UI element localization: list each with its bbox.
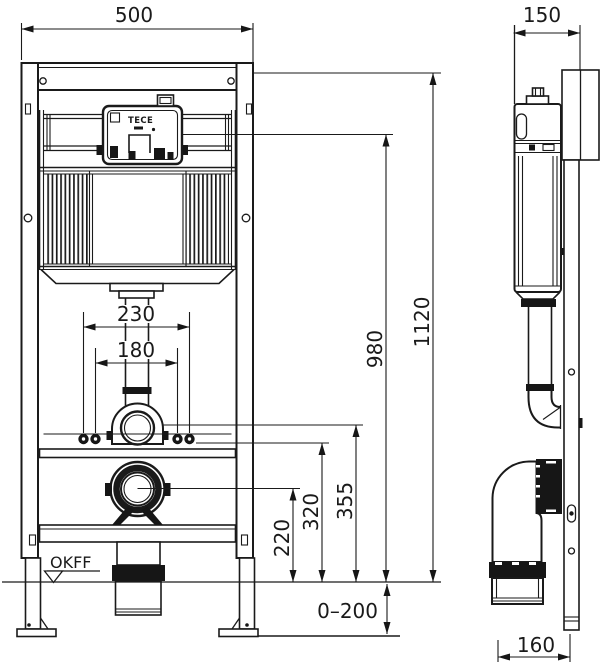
cover-clip-left xyxy=(97,145,103,155)
crossbar-screw-hole-left xyxy=(40,78,46,84)
side-rail xyxy=(564,160,579,630)
flush-pipe-coupling xyxy=(123,387,152,394)
level-triangle-icon xyxy=(45,571,63,583)
wc-outlet-ring xyxy=(105,462,171,525)
dim-total-height-label: 1120 xyxy=(410,297,434,348)
dim-frame-depth-label: 150 xyxy=(523,3,561,27)
rail-hole xyxy=(569,548,575,554)
cover-detail-square xyxy=(111,113,120,122)
dim-frame-depth: 150 xyxy=(514,3,581,70)
side-drain-elbow xyxy=(489,459,562,604)
dim-flush-pipe-height: 355 xyxy=(333,425,360,582)
rail-slot xyxy=(247,104,252,114)
dim-floor-adjustment: 0–200 xyxy=(317,584,390,634)
dim-actuation-height-label: 980 xyxy=(363,330,387,368)
dim-frame-width: 500 xyxy=(22,3,254,72)
rail-slot xyxy=(30,535,36,545)
side-flush-pipe xyxy=(526,307,561,429)
frame-rail-right xyxy=(237,63,254,558)
crossbar-screw-hole-right xyxy=(228,78,234,84)
side-view xyxy=(489,25,599,630)
fixing-rod xyxy=(90,434,100,444)
rail-hook xyxy=(579,418,583,428)
fixing-rod xyxy=(78,434,88,444)
rib-area-right xyxy=(186,174,229,264)
drain-coupling xyxy=(112,565,165,581)
rib-area-left xyxy=(46,174,89,264)
flush-outlet-cone xyxy=(110,284,163,299)
dim-outlet-offset-label: 160 xyxy=(517,633,555,657)
dim-outlet-height-label: 220 xyxy=(270,519,294,557)
rail-slot xyxy=(26,104,31,114)
dim-fixing-rod-height-label: 320 xyxy=(299,493,323,531)
dim-floor-adjustment-label: 0–200 xyxy=(317,599,378,623)
fill-valve-cap xyxy=(527,96,549,104)
rail-hole-right xyxy=(242,214,250,222)
wc-frame-drawing: TECE xyxy=(0,0,600,666)
dim-outlet-height: 220 xyxy=(270,489,297,583)
floor-level-label: OKFF xyxy=(50,553,92,572)
dim-fixing-spacing-outer-label: 230 xyxy=(117,302,155,326)
fixing-rod xyxy=(184,434,194,444)
rail-hole-left xyxy=(24,214,32,222)
floor-level-marker: OKFF xyxy=(45,553,101,583)
brand-label: TECE xyxy=(128,116,153,126)
fixing-rod xyxy=(172,434,182,444)
dim-outlet-offset: 160 xyxy=(498,633,570,662)
dim-fixing-rod-height: 320 xyxy=(299,443,326,582)
flush-bend xyxy=(107,404,169,445)
rail-slot xyxy=(242,535,248,545)
lower-crossbar xyxy=(40,525,236,542)
middle-crossbar xyxy=(40,449,236,458)
dim-fixing-spacing-inner-label: 180 xyxy=(117,338,155,362)
cistern-outlet-coupling xyxy=(521,299,556,307)
cistern-bottom-taper xyxy=(41,270,234,284)
cover-tab-inner xyxy=(160,98,171,104)
drain-pipe xyxy=(112,542,165,615)
dim-flush-pipe-height-label: 355 xyxy=(333,482,357,520)
inspection-cover: TECE xyxy=(103,95,182,164)
side-cistern xyxy=(515,88,562,307)
rail-hole xyxy=(569,369,575,375)
dim-total-height: 1120 xyxy=(410,73,437,582)
push-rod-housing xyxy=(517,114,527,139)
drain-socket xyxy=(492,578,543,604)
technical-drawing-page: TECE xyxy=(0,0,600,666)
frame-rail-left xyxy=(22,63,39,558)
foot-right xyxy=(219,558,258,637)
dim-frame-width-label: 500 xyxy=(115,3,153,27)
dim-actuation-height: 980 xyxy=(363,135,390,583)
